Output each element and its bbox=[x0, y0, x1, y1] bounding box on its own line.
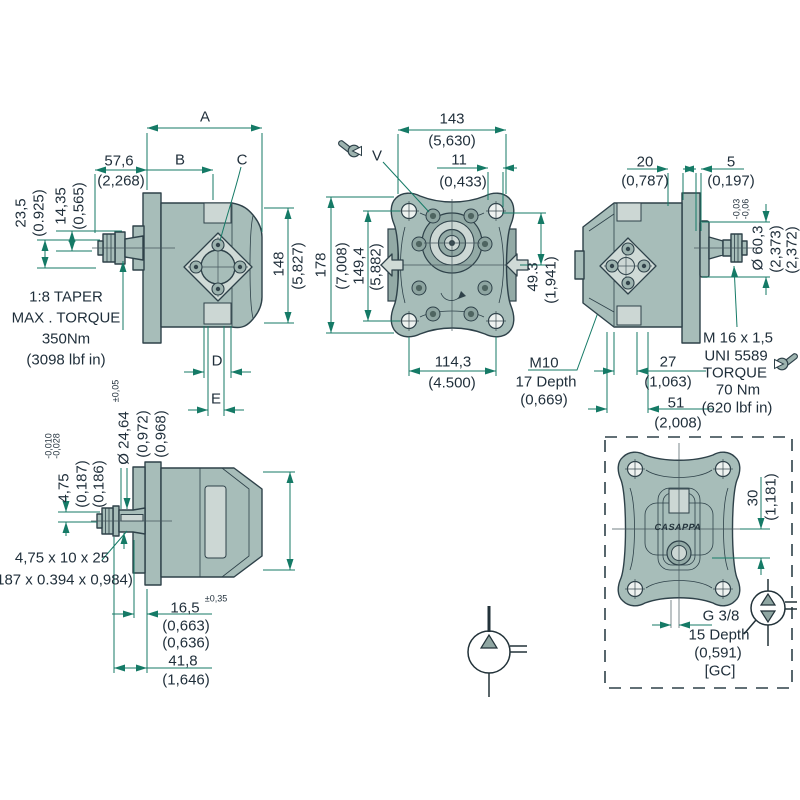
dim-24-64-in1: (0,972) bbox=[136, 410, 151, 458]
dim-14-35-in: (0,565) bbox=[72, 182, 87, 230]
dim-23-5-in: (0.925) bbox=[32, 189, 47, 237]
side-view-right bbox=[575, 193, 756, 343]
dim-143-mm: 143 bbox=[439, 112, 464, 127]
dim-20-in: (0,787) bbox=[621, 174, 669, 189]
dim-41-8-in: (1,646) bbox=[162, 673, 210, 688]
dim-30-mm: 30 bbox=[746, 490, 761, 507]
dim-49-3-mm: 49.3 bbox=[526, 262, 541, 291]
port-label-v: V bbox=[372, 149, 382, 164]
dim-label-a: A bbox=[200, 110, 210, 125]
wrench-icon-v bbox=[338, 140, 362, 157]
dim-4-75-mm: 4,75 bbox=[57, 473, 72, 502]
dim-178-mm: 178 bbox=[314, 252, 329, 277]
dim-60-3-in2: (2,372) bbox=[785, 226, 800, 274]
dim-41-8-mm: 41,8 bbox=[168, 654, 197, 669]
dim-60-3-tol-lower: -0,06 bbox=[742, 199, 751, 220]
dim-16-5-in1: (0,663) bbox=[162, 619, 210, 634]
dim-60-3-in1: (2,373) bbox=[769, 225, 784, 273]
dim-label-b: B bbox=[175, 153, 185, 168]
pump-schematic-symbol bbox=[468, 606, 527, 697]
m16-note-line2: UNI 5589 bbox=[704, 349, 767, 364]
dim-57-6-mm: 57,6 bbox=[104, 154, 133, 169]
dim-148-mm: 148 bbox=[272, 251, 287, 276]
dim-24-64-in2: (0,968) bbox=[154, 410, 169, 458]
bottom-side-view bbox=[91, 462, 262, 585]
dim-20-mm: 20 bbox=[637, 155, 654, 170]
dim-label-e: E bbox=[211, 392, 221, 407]
dim-4-75-tol-lower: -0,028 bbox=[53, 433, 62, 459]
dim-49-3-in: (1,941) bbox=[544, 256, 559, 304]
m10-note-line3: (0,669) bbox=[520, 393, 568, 408]
m16-note-line5: (620 lbf in) bbox=[702, 401, 773, 416]
dim-57-6-in: (2,268) bbox=[97, 174, 145, 189]
taper-note-line1: 1:8 TAPER bbox=[29, 290, 103, 305]
technical-drawing-page: A 57,6 (2,268) B C D E 23,5 (0.925) 14,3… bbox=[0, 0, 800, 800]
dim-label-c: C bbox=[237, 153, 248, 168]
dim-143-in: (5,630) bbox=[428, 134, 476, 149]
port-note-line3: (0,591) bbox=[694, 646, 742, 661]
dim-11-in: (0,433) bbox=[439, 175, 487, 190]
pump-schematic-symbol-gc bbox=[744, 579, 797, 646]
dim-16-5-mm: 16,5 bbox=[170, 601, 199, 616]
dim-4-75-in1: (0,187) bbox=[75, 460, 90, 508]
wrench-icon-torque bbox=[775, 353, 799, 370]
key-note-mm: 4,75 x 10 x 25 bbox=[15, 551, 109, 566]
dim-4-75-in2: (0,186) bbox=[92, 460, 107, 508]
taper-note-line2: MAX . TORQUE bbox=[12, 311, 121, 326]
dim-149-4-in: (5,882) bbox=[369, 243, 384, 291]
dim-16-5-in2: (0,636) bbox=[162, 636, 210, 651]
dim-24-64-mm: Ø 24,64 bbox=[117, 411, 132, 464]
front-view bbox=[380, 193, 528, 337]
rear-view bbox=[612, 443, 745, 628]
port-note-line1: G 3/8 bbox=[703, 609, 740, 624]
taper-note-line3: 350Nm bbox=[42, 332, 90, 347]
taper-note-line4: (3098 lbf in) bbox=[26, 353, 105, 368]
m16-note-line3: TORQUE bbox=[703, 366, 767, 381]
dim-23-5-mm: 23,5 bbox=[14, 198, 29, 227]
dim-51-mm: 51 bbox=[668, 396, 685, 411]
dim-label-d: D bbox=[212, 354, 223, 369]
key-note-in: (187 x 0.394 x 0,984) bbox=[0, 573, 133, 588]
dim-5-mm: 5 bbox=[727, 155, 735, 170]
dim-30-in: (1,181) bbox=[764, 473, 779, 521]
dim-149-4-mm: 149,4 bbox=[352, 247, 367, 285]
dim-178-in: (7,008) bbox=[335, 242, 350, 290]
dim-16-5-tol: ±0,35 bbox=[205, 595, 227, 604]
dim-60-3-mm: Ø 60,3 bbox=[751, 225, 766, 270]
dim-114-3-mm: 114,3 bbox=[435, 355, 471, 370]
dim-14-35-mm: 14,35 bbox=[54, 187, 69, 225]
m16-note-line1: M 16 x 1,5 bbox=[703, 331, 773, 346]
dim-24-64-tol: ±0,05 bbox=[112, 380, 121, 402]
m10-note-line2: 17 Depth bbox=[516, 375, 577, 390]
dim-11-mm: 11 bbox=[451, 153, 467, 168]
brand-logo: CASAPPA bbox=[654, 522, 703, 532]
dim-27-mm: 27 bbox=[660, 355, 677, 370]
port-note-line4: [GC] bbox=[705, 664, 736, 679]
port-note-line2: 15 Depth bbox=[689, 628, 750, 643]
dim-5-in: (0,197) bbox=[707, 174, 755, 189]
dim-27-in: (1,063) bbox=[644, 375, 692, 390]
dim-148-in: (5,827) bbox=[291, 242, 306, 290]
m16-note-line4: 70 Nm bbox=[716, 383, 760, 398]
dim-51-in: (2,008) bbox=[654, 416, 702, 431]
dim-114-3-in: (4.500) bbox=[428, 376, 476, 391]
m10-note-line1: M10 bbox=[529, 356, 558, 371]
